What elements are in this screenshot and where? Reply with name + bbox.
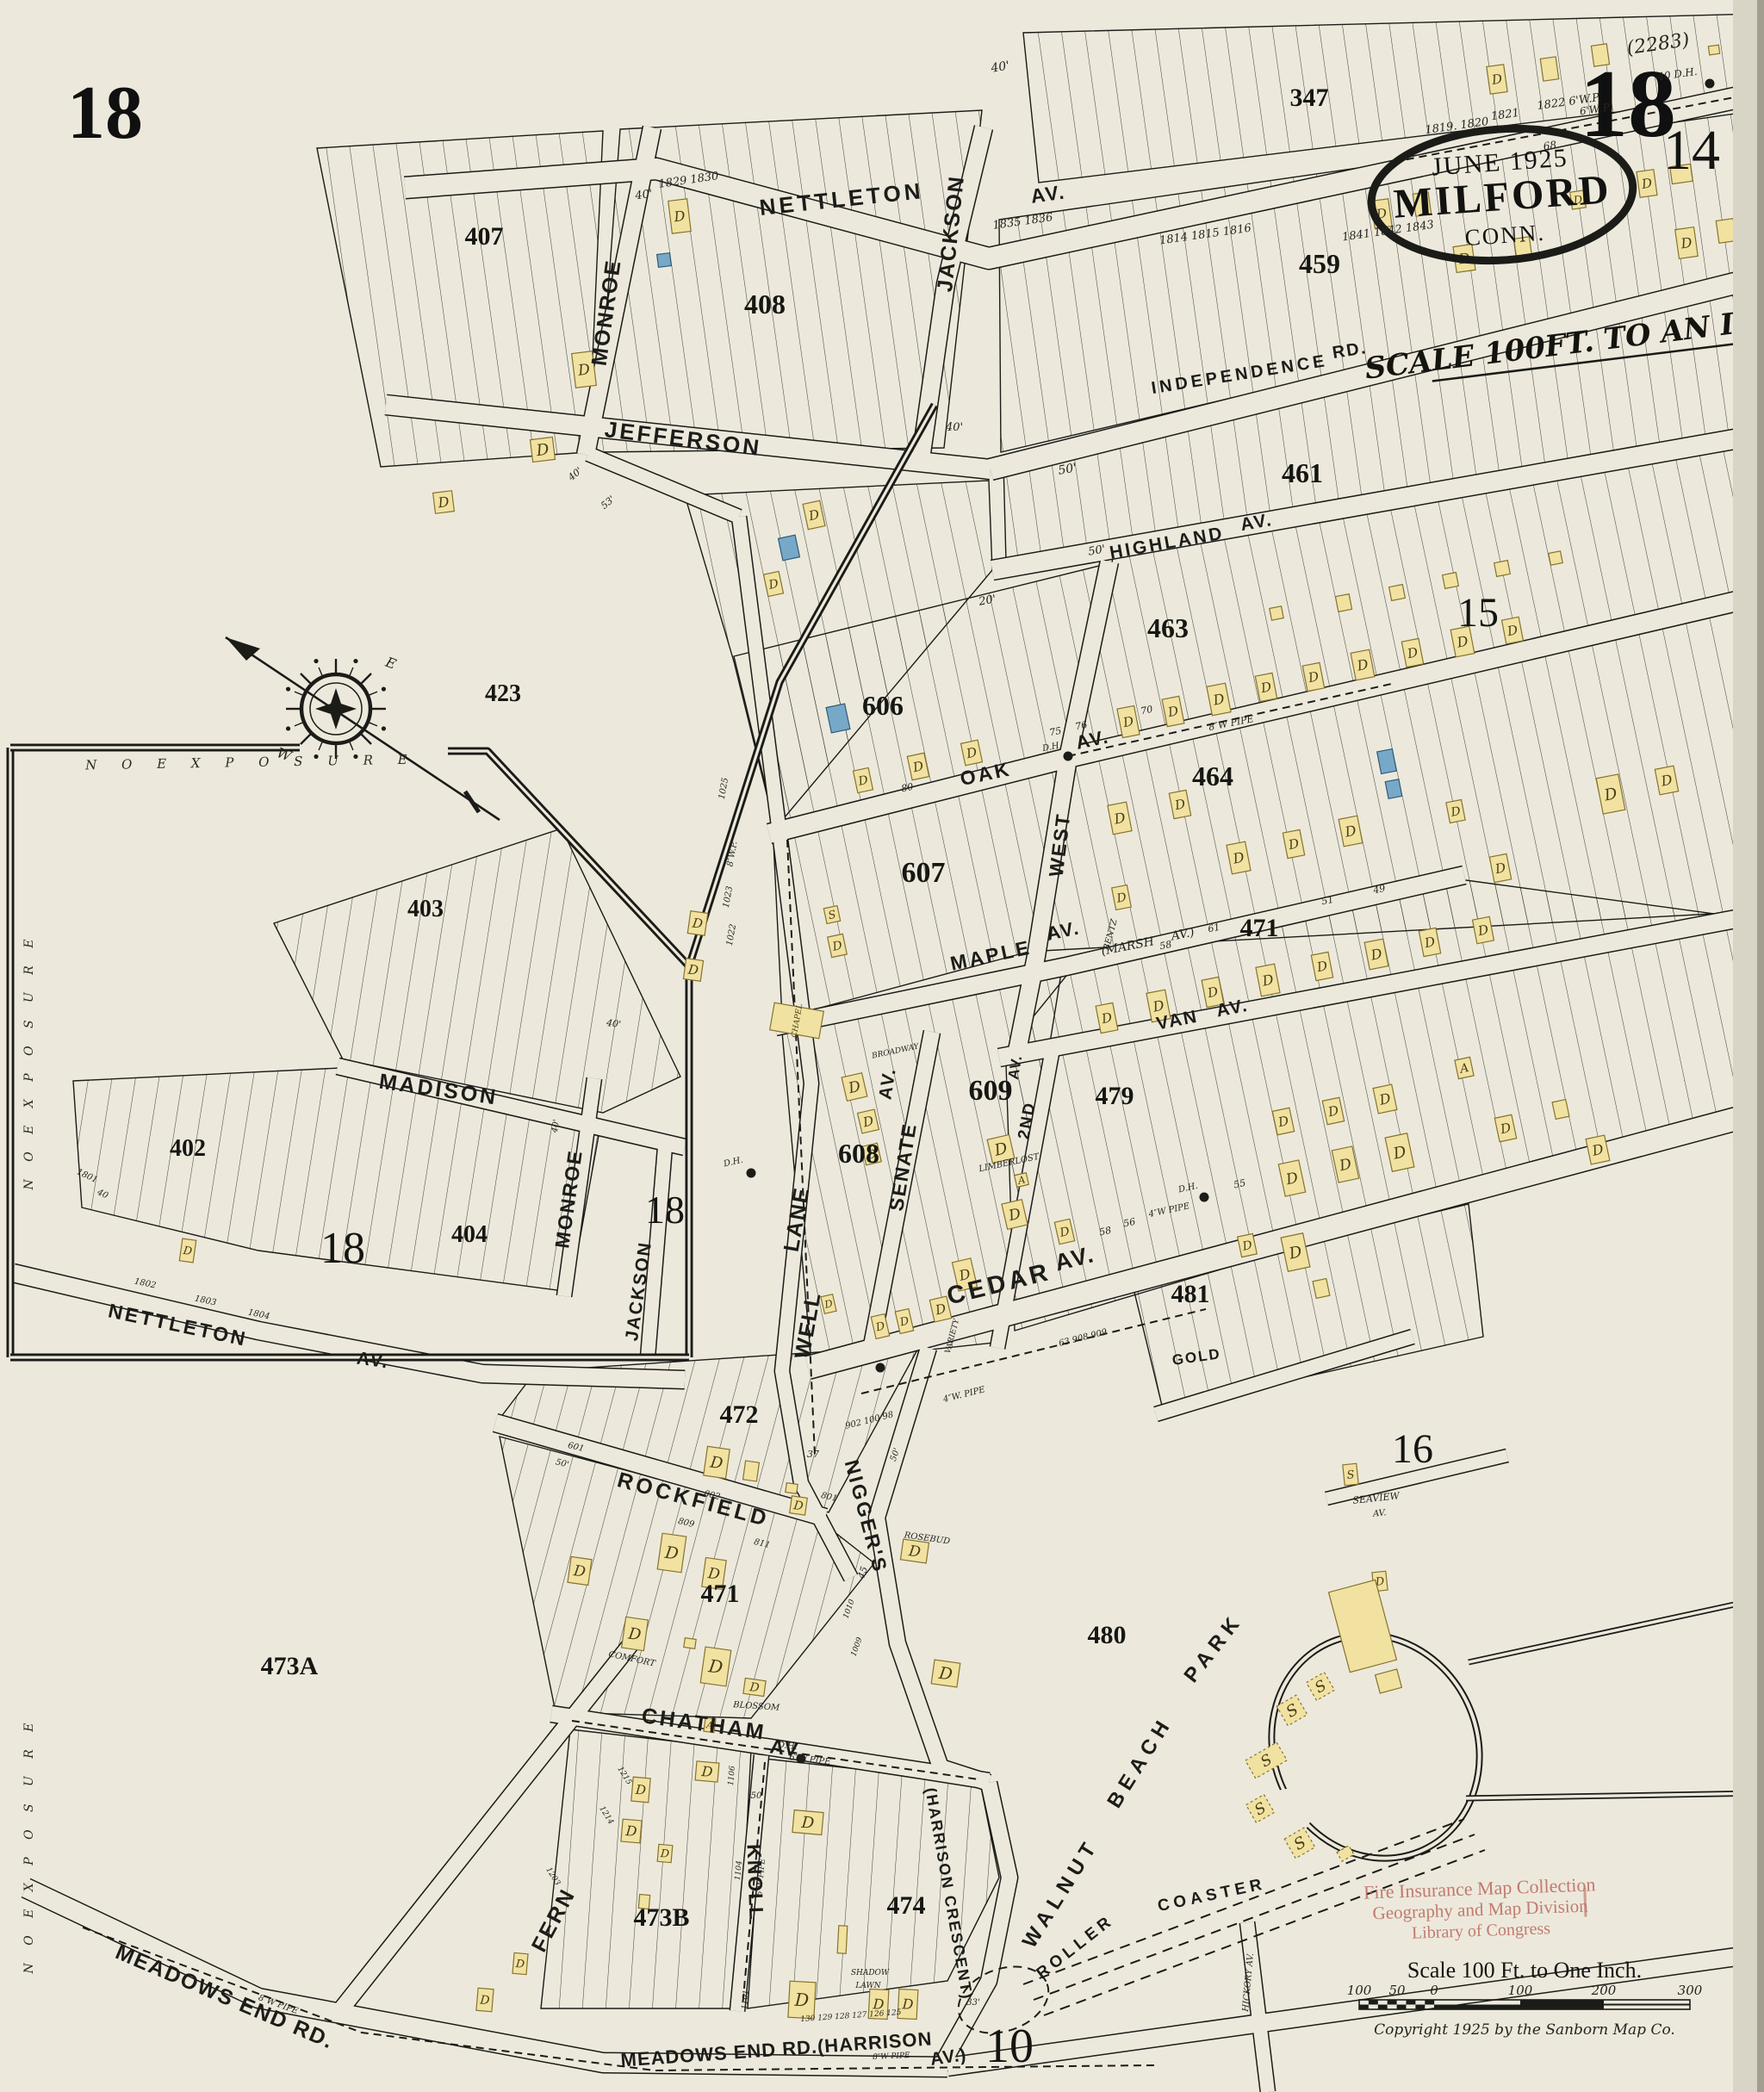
building-letter: D [626,1624,643,1644]
block-number: 607 [902,857,946,889]
no-exposure-label: N O E X P O S U R E [22,1716,36,1974]
compass-rose [226,637,500,820]
building-letter: D [901,1996,914,2013]
hydrant-dot [876,1363,885,1373]
compass-star [315,688,357,729]
annotation-label: D.H. [722,1156,744,1170]
building-wood: D [476,1988,494,2011]
annotation-label: LAWN [854,1982,881,1990]
annotation-label: 1009 [850,1636,865,1658]
building-wood [1270,606,1283,620]
building-wood [1389,585,1406,601]
block-number: 606 [862,690,904,721]
street-casing-niggers-lane [877,1348,989,1783]
scan-edge-dark [1757,0,1764,2092]
building-wood [1329,1580,1397,1672]
scale-bar-tick: 300 [1678,1983,1703,1998]
building-wood: S [823,906,840,924]
annotation-label: 80 [900,781,914,794]
building-wood: D [743,1678,766,1696]
building-wood [786,1483,798,1494]
building-letter: D [672,208,686,226]
building-wood: S [1245,1742,1287,1779]
annotation-label: 40' [565,465,584,484]
street-name-label: AV. [356,1349,390,1373]
building-wood: D [179,1238,196,1263]
building-letter: D [514,1958,525,1971]
building-wood: D [433,491,455,514]
sheet-number: 10 [985,2020,1034,2073]
street-name-label: AV. [1029,180,1067,207]
building-letter: D [535,441,550,461]
scale-bar-title: Scale 100 Ft. to One Inch. [1407,1958,1642,1983]
annotation-label: 1022 [725,923,738,947]
sheet-number: 18 [320,1224,365,1273]
block-number: 473B [633,1903,689,1932]
block-number: 480 [1088,1621,1127,1649]
building-wood: D [700,1647,731,1686]
building-wood: D [1675,227,1699,259]
street-well-lane-connector [588,454,739,517]
block-number: 472 [720,1400,759,1429]
map-canvas: DDDDDDDDDDDDDDDSDCHAPELDDDDDDDDDDDDDDDDD… [0,0,1764,2092]
park-name-label: BEACH [1102,1712,1177,1812]
building-wood [837,1926,848,1953]
building-wood: A [1455,1057,1474,1078]
annotation-label: 40' [605,1017,622,1030]
block-number: 402 [170,1135,206,1162]
building-wood: D [621,1819,642,1843]
scale-bar-tick: 100 [1508,1983,1533,1998]
street-nettleton-av-inset [13,1273,685,1380]
annotation-label: 1106 [727,1766,737,1786]
hydrant-dot [1200,1193,1209,1202]
scale-bar-tick: 200 [1591,1983,1617,1998]
annotation-label: 51 [1320,894,1334,907]
building-wood [1549,551,1562,565]
annotation-label: 70 [1140,704,1153,717]
block-number: 459 [1299,248,1340,279]
building-wood: D [790,1496,808,1515]
annotation-label: 1101 [741,1990,751,2010]
block-number: 471 [701,1580,740,1608]
annotation-label: 40' [945,421,963,434]
annotation-label: 1803 [194,1294,217,1308]
building-wood: D [792,1810,823,1835]
building-wood: S [1307,1673,1335,1701]
building-wood: D [568,1556,592,1585]
annotation-label: 1025 [717,777,730,800]
building-wood [1494,561,1511,577]
building-letter: D [748,1680,760,1696]
annotation-label: 40' [989,59,1010,76]
annotation-label: 37 [807,1449,819,1460]
annotation-label: 1023 [722,885,735,909]
library-of-congress-stamp: Fire Insurance Map CollectionGeography a… [1363,1873,1598,1944]
building-wood: D [687,911,707,936]
annotation-label: 68 [1543,139,1557,152]
building-letter: D [479,1993,490,2008]
annotation-label: 1802 [134,1277,157,1291]
building-letter: D [634,1782,647,1798]
block-number: 479 [1096,1082,1134,1110]
hydrant-dot [747,1169,756,1178]
no-exposure-label: N O E X P O S U R E [84,752,418,773]
annotation-label: 58 [1158,939,1172,952]
building-letter: D [572,1562,587,1581]
copyright-line: Copyright 1925 by the Sanborn Map Co. [1374,2021,1675,2039]
scale-bar-tick: 0 [1430,1983,1438,1998]
hydrant-dot [1705,79,1715,89]
building-wood: D [683,959,703,982]
block-number: 423 [485,680,521,707]
compass-east-label: E [382,654,399,673]
building-wood: D [1637,170,1657,197]
building-wood [684,1638,696,1649]
block-number: 347 [1290,84,1329,112]
building-letter: D [792,1499,804,1514]
building-wood: D [1446,800,1465,823]
building-letter: D [624,1822,638,1840]
block-number: 464 [1192,760,1233,791]
building-letter: D [800,1814,816,1833]
annotation-label: 33' [966,1998,979,2008]
building-stone [1385,779,1402,799]
block-number: 404 [451,1221,488,1248]
annotation-label: 4″W. PIPE [941,1385,987,1405]
building-wood: D [622,1617,649,1650]
building-letter: D [706,1655,724,1678]
annotation-label: 130 129 128 127 126 125 [800,2008,902,2024]
building-stone [657,253,672,268]
loc-stamp-line: Library of Congress [1412,1919,1551,1943]
building-wood: D [1487,65,1507,94]
sheet-number: 14 [1663,119,1720,182]
building-wood [1313,1279,1330,1299]
building-letter: D [700,1763,714,1780]
building-letter: D [659,1847,670,1861]
building-letter: S [1346,1468,1356,1482]
sheet-number: 18 [645,1188,685,1232]
building-wood: D [668,199,691,233]
building-wood: D [695,1761,719,1782]
building-letter: D [793,1990,810,2011]
building-letter: D [436,494,450,512]
park-name-label: COASTER [1156,1875,1267,1915]
annotation-label: SHADOW [851,1969,890,1977]
block-number: 609 [969,1075,1013,1107]
annotation-label: AV. [1372,1508,1388,1519]
annotation-label: 53' [599,494,617,512]
block-number: 408 [744,289,786,320]
block-number: 481 [1171,1280,1210,1308]
building-wood: S [1343,1463,1358,1486]
building-wood: D [788,1981,816,2019]
scale-bar-tick: 50 [1388,1983,1406,1998]
building-wood: D [704,1446,730,1478]
block-number: 407 [465,222,504,251]
building-wood [1335,594,1351,612]
building-letter: D [1679,234,1693,252]
building-wood [743,1461,760,1481]
building-letter: D [1640,175,1653,192]
building-wood: D [931,1660,960,1687]
building-wood [1443,573,1459,589]
block-number: 474 [887,1891,926,1920]
building-wood: D [657,1844,673,1862]
block-number: 471 [1240,914,1279,942]
annotation-label: 76 [1074,719,1088,732]
scale-bar-tick: 100 [1347,1983,1372,1998]
building-wood: D [531,438,556,462]
building-wood [1540,57,1558,81]
building-letter: D [686,961,699,978]
building-wood [1552,1100,1569,1120]
block-number: 403 [407,896,444,922]
annotation-label: 75 [1048,725,1062,738]
building-wood: D [657,1533,686,1572]
city-block [541,1729,751,2008]
building-wood: D [512,1952,528,1974]
building-wood [1708,45,1719,55]
block-number: 608 [838,1138,879,1169]
no-exposure-label: N O E X P O S U R E [22,932,36,1190]
annotation-label: 63 908 909 [1058,1327,1109,1349]
building-letter: D [907,1543,922,1561]
park-name-label: PARK [1179,1609,1247,1687]
annotation-label: 1104 [734,1860,744,1881]
hydrant-dot [1064,752,1073,761]
building-wood: A [1015,1173,1029,1188]
building-letter: D [1490,71,1503,88]
sanborn-map-sheet: MILFORD CONN. JUNE 1925 - Sheet 18 DDDDD… [0,0,1764,2092]
block-number: 473A [261,1652,319,1680]
building-letter: D [708,1453,724,1473]
building-letter: D [691,915,704,932]
building-wood: D [631,1777,650,1803]
block-number: 463 [1147,612,1189,643]
block-number: 461 [1282,457,1323,488]
annotation-label: 50 [751,1791,762,1801]
sheet-number: 18 [67,71,143,155]
sheet-number: 16 [1392,1426,1433,1472]
building-wood [1376,1669,1402,1693]
annotation-label: 61 [1207,922,1221,934]
sheet-number: 15 [1457,590,1499,636]
annotation-label: 40' [634,188,654,203]
building-letter: D [182,1245,193,1258]
